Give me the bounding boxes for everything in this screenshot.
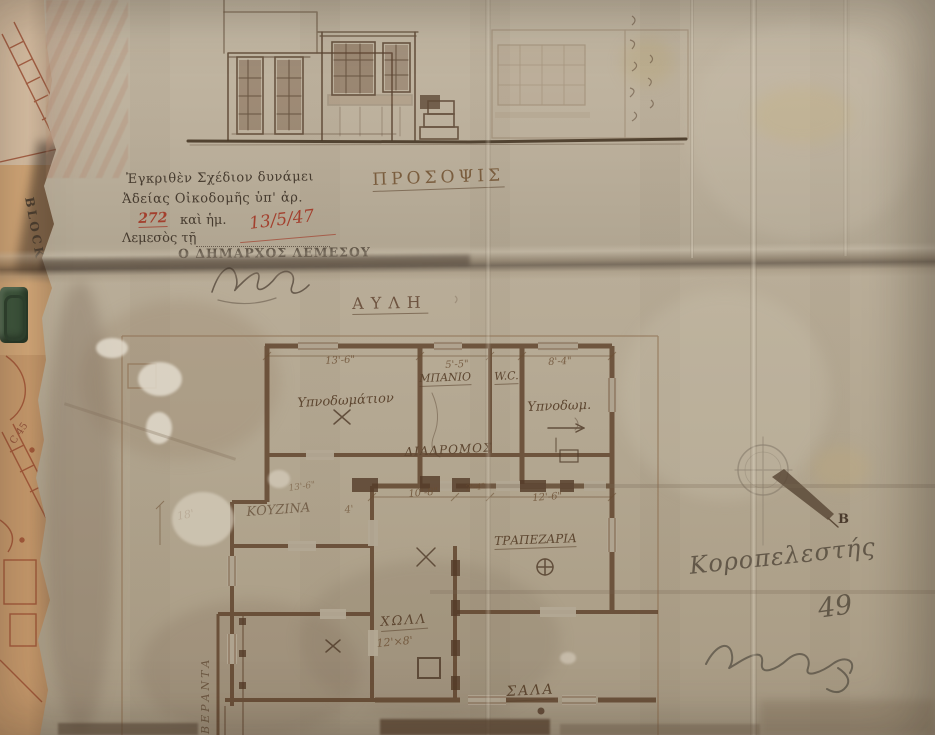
dim-top-left: 13'-6"	[325, 354, 355, 367]
horizontal-crease	[480, 484, 935, 488]
vertical-crease	[485, 0, 491, 735]
bottom-dark-band	[560, 724, 760, 735]
horizontal-crease	[430, 590, 935, 594]
label-living: ΣΑΛΑ	[506, 681, 555, 701]
dim-top-mid: 5'-5"	[445, 359, 469, 371]
floor-plan-walls	[218, 346, 658, 735]
paint-scuff	[96, 338, 128, 358]
elevation-faint-right	[492, 30, 688, 138]
stamp-line4: Λεμεσὸς τῇ	[122, 231, 196, 246]
elevation-right-block	[318, 32, 458, 140]
paint-scuff	[138, 362, 182, 396]
label-bathroom: ΜΠΑΝΙΟ	[419, 370, 471, 387]
courtyard-label: ΑΥΛΗ	[352, 293, 428, 315]
label-veranda: ΒΕΡΑΝΤΑ	[199, 657, 212, 734]
vertical-crease	[690, 0, 694, 258]
paint-scuff	[560, 652, 576, 664]
stamp-line2: Ἀδείας Οἰκοδομῆς ὑπ' ἀρ.	[122, 190, 303, 207]
label-bedroom-right: Υπνοδωμ.	[527, 398, 591, 415]
margin-note-line2: 49	[816, 589, 854, 624]
compass-letter: B	[838, 512, 849, 527]
dim-top-right: 8'-4"	[548, 356, 572, 368]
blueprint-photo: BLOCK C 45	[0, 0, 935, 735]
paint-scuff	[268, 470, 290, 488]
paint-scuff	[172, 492, 234, 546]
vertical-crease	[750, 0, 757, 735]
vertical-crease	[843, 0, 848, 256]
margin-signature-scribble	[706, 646, 852, 692]
label-wc: W.C.	[494, 369, 519, 385]
stamp-permit-number: 272	[138, 210, 168, 228]
bottom-dark-band	[58, 723, 198, 735]
stamp-line3-mid: καὶ ἡμ.	[180, 213, 227, 228]
bottom-right-shade	[760, 700, 935, 735]
label-dining: ΤΡΑΠΕΖΑΡΙΑ	[494, 531, 577, 550]
label-hall: ΧΩΛΛ	[380, 612, 428, 632]
bottom-dark-band	[380, 719, 550, 735]
dim-mid-right: 12'-6"	[532, 491, 563, 504]
elevation-ground-line	[188, 139, 686, 145]
dim-kitchen-d: 4'	[344, 504, 354, 516]
stamp-line1: Ἐγκριθὲν Σχέδιον δυνάμει	[126, 169, 314, 187]
